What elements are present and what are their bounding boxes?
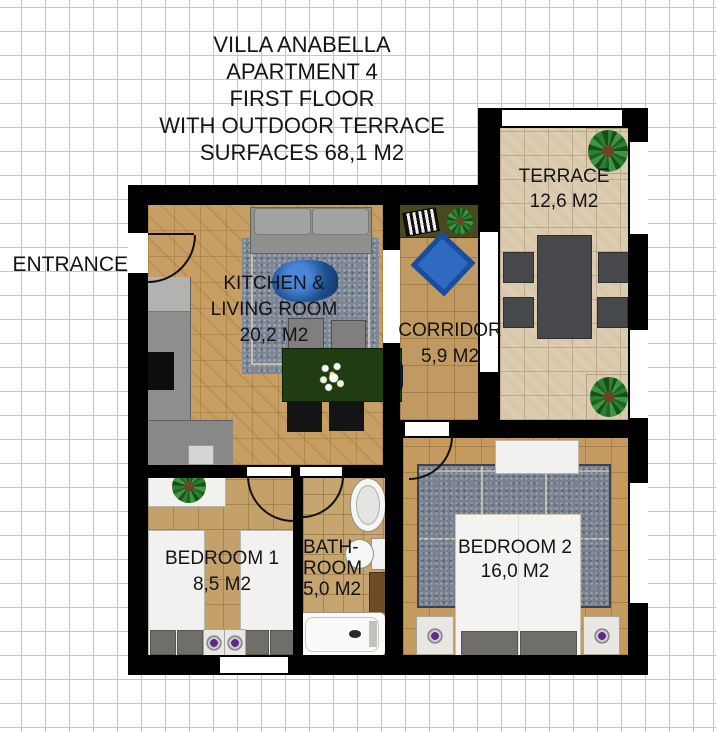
bathroom-door-opening <box>300 467 342 476</box>
room-area: 5,0 M2 <box>303 579 383 600</box>
sofa-cushion <box>254 208 311 235</box>
wall-bottom <box>128 655 648 675</box>
stove <box>148 352 174 390</box>
bathtub <box>298 612 386 657</box>
room-name: LIVING ROOM <box>174 297 374 323</box>
bathtub-inner <box>305 617 379 652</box>
room-name: BEDROOM 1 <box>148 546 296 572</box>
terrace-table <box>537 235 592 339</box>
washbasin-bowl <box>356 485 380 525</box>
room-area: 12,6 M2 <box>498 189 630 214</box>
bed-foot-cushion <box>243 630 269 655</box>
terrace-chair <box>598 252 629 283</box>
bathtub-faucet <box>369 621 377 647</box>
terrace-chair <box>503 252 534 283</box>
bedroom2-label: BEDROOM 2 16,0 M2 <box>408 536 622 584</box>
room-area: 8,5 M2 <box>148 572 296 598</box>
sofa <box>250 207 372 254</box>
title-line: SURFACES 68,1 M2 <box>128 139 476 166</box>
doormat <box>402 207 440 237</box>
bathtub-drain <box>349 630 361 638</box>
bed-pillow <box>520 631 577 657</box>
dining-chair-black <box>287 398 322 432</box>
bedroom2-window <box>630 483 648 603</box>
bed-foot-cushion <box>150 630 176 655</box>
bedroom1-door-opening <box>247 467 291 476</box>
room-area: 5,9 M2 <box>383 344 517 370</box>
kitchen-living-label: KITCHEN & LIVING ROOM 20,2 M2 <box>174 271 374 349</box>
title-line: FIRST FLOOR <box>128 85 476 112</box>
corridor-label: CORRIDOR 5,9 M2 <box>383 318 517 370</box>
nightstand <box>224 629 246 657</box>
bedroom2-dresser <box>495 440 579 474</box>
bed-foot-cushion <box>177 630 203 655</box>
room-name: BEDROOM 2 <box>408 536 622 560</box>
sofa-cushion <box>312 208 369 235</box>
washbasin <box>350 478 386 532</box>
bedroom2-door-opening <box>405 422 449 436</box>
bedroom1-label: BEDROOM 1 8,5 M2 <box>148 546 296 598</box>
kitchen-sink <box>188 445 214 465</box>
flower-bouquet <box>315 357 349 395</box>
room-name: ROOM <box>303 558 383 579</box>
room-name: CORRIDOR <box>383 318 517 344</box>
terrace-top-window <box>502 110 622 126</box>
kitchen-counter-lower <box>148 420 233 466</box>
nightstand <box>203 629 225 657</box>
entrance-label: ENTRANCE <box>6 253 128 277</box>
terrace-chair <box>597 297 628 328</box>
potted-plant <box>590 377 628 417</box>
terrace-label: TERRACE 12,6 M2 <box>498 164 630 214</box>
title-line: VILLA ANABELLA <box>128 31 476 58</box>
title-line: APARTMENT 4 <box>128 58 476 85</box>
nightstand <box>416 616 454 655</box>
room-area: 20,2 M2 <box>174 323 374 349</box>
wall-bathroom-bedroom2 <box>385 438 403 655</box>
plan-title: VILLA ANABELLA APARTMENT 4 FIRST FLOOR W… <box>128 31 476 166</box>
entrance-door-opening <box>128 233 148 273</box>
bedroom1-window <box>220 657 288 673</box>
room-name: KITCHEN & <box>174 271 374 297</box>
dining-chair-black <box>329 398 364 431</box>
room-name: BATH- <box>303 537 383 558</box>
bed-foot-cushion <box>270 630 295 655</box>
nightstand <box>583 616 620 655</box>
room-name: TERRACE <box>498 164 630 189</box>
wall-top <box>128 185 500 205</box>
bed-pillow <box>461 631 518 657</box>
room-area: 16,0 M2 <box>408 560 622 584</box>
potted-plant <box>447 208 473 234</box>
terrace-right-window <box>630 142 648 234</box>
terrace-right-window <box>630 330 648 418</box>
title-line: WITH OUTDOOR TERRACE <box>128 112 476 139</box>
floor-plan-canvas: VILLA ANABELLA APARTMENT 4 FIRST FLOOR W… <box>0 0 716 732</box>
bathroom-label: BATH- ROOM 5,0 M2 <box>303 537 383 600</box>
